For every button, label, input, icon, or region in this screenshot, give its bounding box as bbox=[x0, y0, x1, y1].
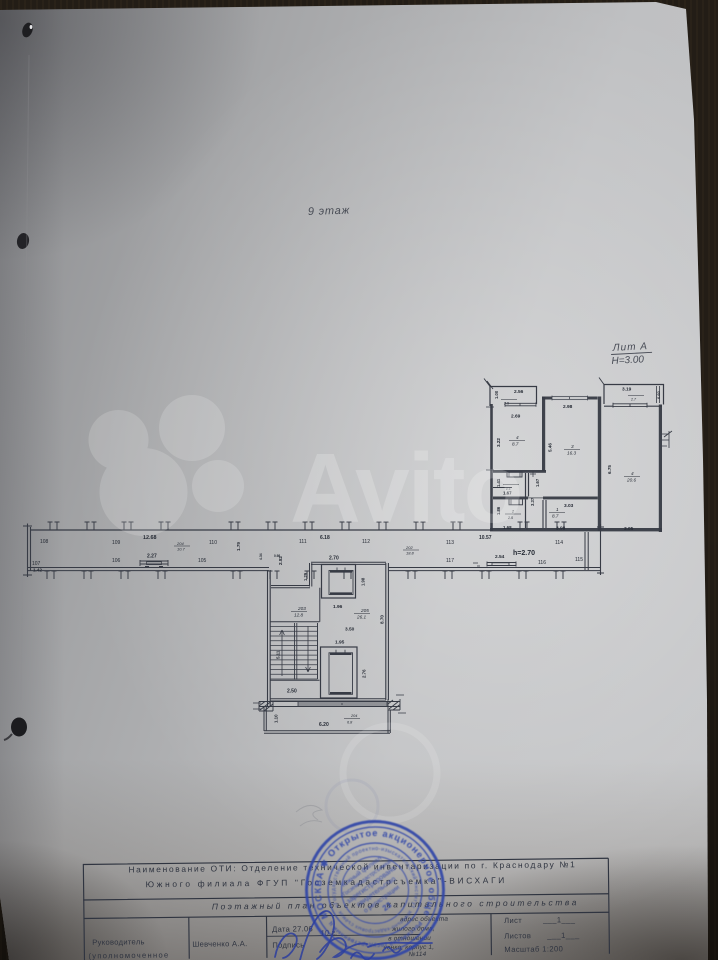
svg-text:Наименование ОТИ: Отделение те: Наименование ОТИ: Отделение технической … bbox=[128, 859, 576, 874]
svg-text:___1___: ___1___ bbox=[546, 931, 580, 940]
svg-text:3: 3 bbox=[571, 444, 574, 449]
svg-text:108: 108 bbox=[40, 539, 49, 545]
svg-text:6.8: 6.8 bbox=[347, 721, 353, 725]
svg-text:2.70: 2.70 bbox=[329, 556, 339, 562]
svg-text:2.7: 2.7 bbox=[630, 398, 637, 402]
svg-text:Лит А: Лит А bbox=[612, 341, 649, 354]
svg-text:1.67: 1.67 bbox=[535, 478, 540, 487]
svg-text:3.03: 3.03 bbox=[564, 503, 574, 509]
svg-text:8.70: 8.70 bbox=[380, 615, 385, 624]
svg-text:2.98: 2.98 bbox=[563, 404, 573, 410]
svg-text:1.10: 1.10 bbox=[274, 714, 279, 723]
svg-text:1.29: 1.29 bbox=[303, 572, 308, 581]
svg-text:2.69: 2.69 bbox=[511, 414, 521, 420]
svg-text:10.7: 10.7 bbox=[177, 547, 186, 552]
svg-text:2.54: 2.54 bbox=[495, 554, 505, 560]
svg-text:Южного филиала ФГУП "Госземкад: Южного филиала ФГУП "Госземкадастрсъемка… bbox=[146, 875, 508, 889]
svg-text:2.50: 2.50 bbox=[287, 689, 297, 695]
svg-text:203: 203 bbox=[297, 606, 306, 611]
svg-text:Руководитель: Руководитель bbox=[92, 937, 145, 947]
svg-text:5.46: 5.46 bbox=[548, 443, 553, 452]
svg-text:0.60: 0.60 bbox=[656, 390, 661, 399]
svg-text:3.05: 3.05 bbox=[624, 526, 634, 532]
svg-text:3.37: 3.37 bbox=[530, 497, 535, 506]
svg-text:3.98: 3.98 bbox=[556, 526, 566, 532]
svg-text:№114: №114 bbox=[408, 951, 426, 958]
svg-text:Avito: Avito bbox=[290, 433, 521, 543]
svg-text:5.11: 5.11 bbox=[276, 650, 281, 659]
svg-text:3.19: 3.19 bbox=[622, 387, 632, 393]
svg-text:4: 4 bbox=[631, 471, 634, 476]
svg-text:204: 204 bbox=[176, 541, 184, 546]
svg-text:115: 115 bbox=[575, 557, 583, 563]
svg-text:20.6: 20.6 bbox=[626, 478, 637, 483]
svg-text:18.8: 18.8 bbox=[406, 551, 415, 556]
svg-text:.10 г.: .10 г. bbox=[318, 928, 338, 938]
svg-text:Н=3.00: Н=3.00 bbox=[611, 354, 644, 367]
svg-text:26.1: 26.1 bbox=[356, 615, 367, 620]
svg-text:2.56: 2.56 bbox=[514, 389, 524, 395]
svg-text:(уполномоченное: (уполномоченное bbox=[88, 950, 169, 960]
svg-text:9 этаж: 9 этаж bbox=[308, 205, 351, 218]
svg-text:1.98: 1.98 bbox=[361, 577, 366, 586]
svg-text:6.20: 6.20 bbox=[319, 722, 329, 728]
svg-text:Поэтажный план объектов капита: Поэтажный план объектов капитального стр… bbox=[212, 897, 579, 911]
svg-text:16.3: 16.3 bbox=[567, 451, 577, 456]
svg-text:Лист: Лист bbox=[504, 916, 522, 925]
svg-text:___1___: ___1___ bbox=[542, 915, 576, 924]
svg-text:h=2.70: h=2.70 bbox=[513, 550, 535, 557]
svg-text:8.7: 8.7 bbox=[552, 514, 559, 519]
svg-text:Шевченко А.А.: Шевченко А.А. bbox=[192, 939, 247, 949]
svg-text:105: 105 bbox=[198, 558, 207, 564]
svg-text:Листов: Листов bbox=[504, 931, 531, 940]
svg-text:114: 114 bbox=[555, 540, 563, 546]
svg-text:107: 107 bbox=[32, 561, 41, 567]
svg-text:202: 202 bbox=[405, 545, 413, 550]
svg-text:116: 116 bbox=[538, 560, 546, 566]
svg-text:1.79: 1.79 bbox=[236, 542, 241, 551]
svg-text:Дата 27.06: Дата 27.06 bbox=[272, 924, 313, 933]
svg-text:109: 109 bbox=[112, 540, 121, 546]
svg-text:Масштаб 1:200: Масштаб 1:200 bbox=[504, 944, 563, 954]
svg-text:106: 106 bbox=[112, 558, 121, 564]
svg-text:1.96: 1.96 bbox=[333, 604, 343, 610]
svg-text:204: 204 bbox=[350, 714, 357, 718]
svg-text:6.75: 6.75 bbox=[607, 465, 612, 474]
svg-text:1.42: 1.42 bbox=[33, 568, 42, 573]
svg-text:0.98: 0.98 bbox=[274, 554, 280, 558]
svg-text:12.8: 12.8 bbox=[294, 613, 304, 618]
svg-text:4.34: 4.34 bbox=[259, 553, 263, 560]
svg-text:2.27: 2.27 bbox=[147, 554, 157, 560]
svg-text:2.76: 2.76 bbox=[362, 669, 367, 678]
svg-text:205: 205 bbox=[360, 608, 369, 613]
svg-text:1: 1 bbox=[556, 507, 559, 512]
svg-text:1.00: 1.00 bbox=[494, 390, 499, 399]
svg-text:2.5: 2.5 bbox=[503, 402, 509, 406]
svg-text:110: 110 bbox=[209, 540, 217, 546]
svg-text:1.95: 1.95 bbox=[335, 640, 345, 646]
svg-text:117: 117 bbox=[446, 558, 454, 564]
svg-text:3.50: 3.50 bbox=[345, 627, 355, 633]
